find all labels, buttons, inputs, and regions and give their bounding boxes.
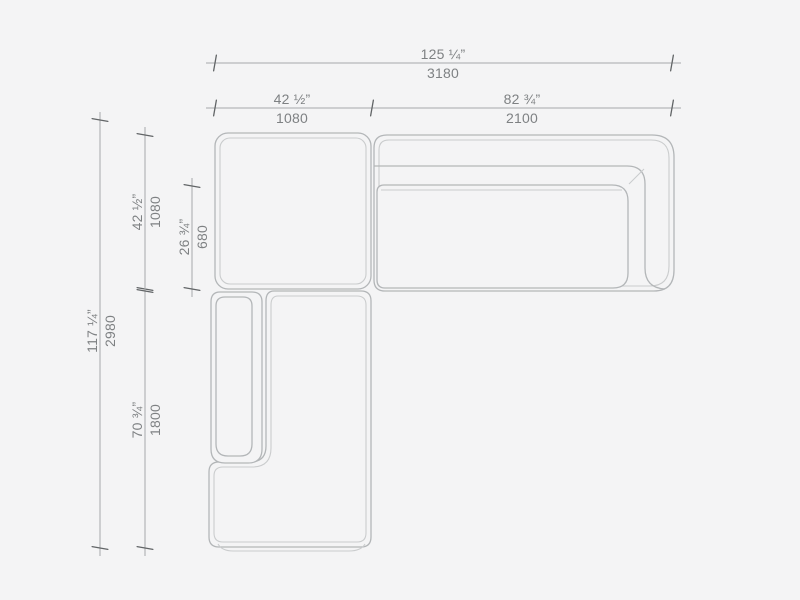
- sofa-dimension-drawing: 125 ¼” 3180 42 ½” 1080 82 ¾” 2100 117 ¼”…: [0, 0, 800, 600]
- dim-total-depth-mm-label: 2980: [102, 315, 118, 347]
- drawing-svg: 125 ¼” 3180 42 ½” 1080 82 ¾” 2100 117 ¼”…: [0, 0, 800, 600]
- dim-seat-depth: 26 ¾” 680: [176, 178, 210, 297]
- armrest-module-outline: [211, 292, 262, 463]
- dim-left-width-inches-label: 42 ½”: [274, 91, 311, 107]
- sofa-seat-cushion-outline: [377, 185, 628, 288]
- dim-seat-depth-mm-label: 680: [194, 225, 210, 249]
- left-armrest-module: [211, 292, 262, 463]
- dim-corner-depth: 42 ½” 1080: [129, 127, 163, 297]
- dim-left-width-mm-label: 1080: [276, 110, 308, 126]
- sofa-module: [374, 135, 674, 291]
- dim-corner-depth-inches-label: 42 ½”: [129, 193, 145, 230]
- dim-total-width-mm-label: 3180: [427, 65, 459, 81]
- dim-chaise-length: 70 ¾” 1800: [129, 283, 163, 556]
- dim-total-width-inches-label: 125 ¼”: [421, 46, 466, 62]
- dim-corner-depth-mm-label: 1080: [147, 196, 163, 228]
- dim-chaise-length-inches-label: 70 ¾”: [129, 401, 145, 438]
- dim-total-depth-inches-label: 117 ¼”: [84, 309, 100, 353]
- dim-total-width: 125 ¼” 3180: [206, 46, 681, 81]
- corner-module: [215, 133, 371, 289]
- dim-right-width-mm-label: 2100: [506, 110, 538, 126]
- dim-seat-depth-inches-label: 26 ¾”: [176, 218, 192, 255]
- dim-right-width-inches-label: 82 ¾”: [504, 91, 541, 107]
- dim-split-width: 42 ½” 1080 82 ¾” 2100: [206, 91, 681, 126]
- corner-module-outline: [215, 133, 371, 289]
- dim-total-depth: 117 ¼” 2980: [84, 112, 118, 556]
- dim-chaise-length-mm-label: 1800: [147, 404, 163, 436]
